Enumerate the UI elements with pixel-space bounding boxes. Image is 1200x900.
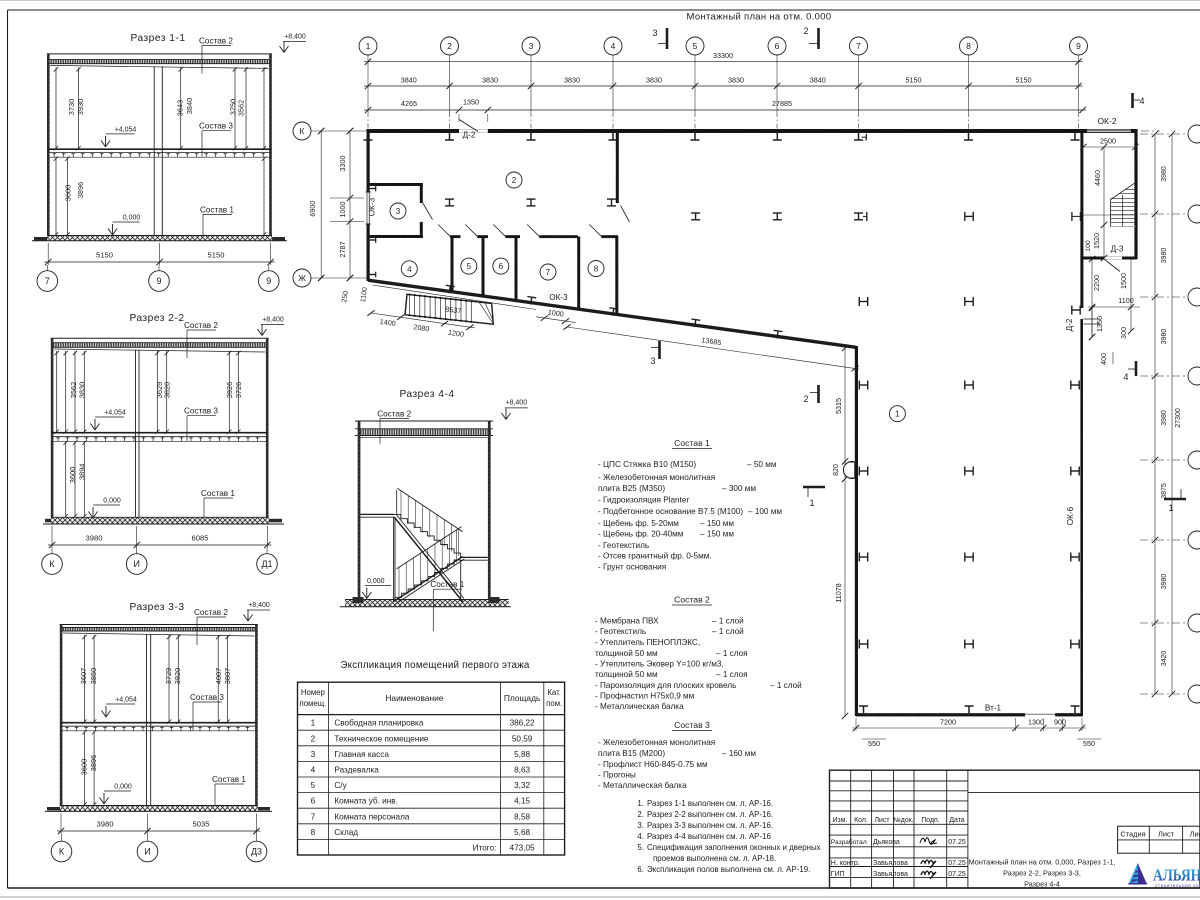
svg-text:Подп.: Подп. <box>921 817 939 824</box>
svg-text:– 300 мм: – 300 мм <box>722 484 756 493</box>
svg-text:Состав 2: Состав 2 <box>194 608 228 617</box>
svg-text:3930: 3930 <box>76 99 85 115</box>
svg-text:5.: 5. <box>637 843 644 852</box>
svg-text:Кат.: Кат. <box>547 688 561 697</box>
svg-text:Итого:: Итого: <box>473 844 497 853</box>
svg-text:3420: 3420 <box>1161 651 1168 667</box>
svg-text:Разрез 2-2, Разрез 3-3,: Разрез 2-2, Разрез 3-3, <box>1003 869 1081 878</box>
svg-text:- Прогоны: - Прогоны <box>598 771 636 780</box>
svg-text:1: 1 <box>311 719 316 728</box>
svg-text:2500: 2500 <box>1100 137 1116 146</box>
svg-text:2: 2 <box>311 734 316 743</box>
svg-text:Лист: Лист <box>1158 830 1175 839</box>
svg-text:5150: 5150 <box>96 251 113 260</box>
svg-text:Д3: Д3 <box>251 847 262 857</box>
svg-text:– 150 мм: – 150 мм <box>700 530 734 539</box>
svg-text:3: 3 <box>396 207 401 216</box>
svg-text:Состав 3: Состав 3 <box>190 693 224 702</box>
svg-text:Комната уб. инв.: Комната уб. инв. <box>334 797 397 806</box>
svg-text:4,15: 4,15 <box>514 797 530 806</box>
svg-text:- Щебень фр. 20-40мм: - Щебень фр. 20-40мм <box>598 530 684 539</box>
svg-text:8: 8 <box>966 41 971 51</box>
svg-text:4: 4 <box>611 41 616 51</box>
svg-text:3980: 3980 <box>1161 248 1168 264</box>
svg-text:+8,400: +8,400 <box>262 317 284 324</box>
svg-text:3562: 3562 <box>69 382 78 398</box>
svg-text:– 1 слой: – 1 слой <box>770 681 802 690</box>
svg-text:5150: 5150 <box>906 76 922 85</box>
svg-text:Главная касса: Главная касса <box>334 750 389 759</box>
svg-text:- Металлическая балка: - Металлическая балка <box>595 702 684 711</box>
svg-text:ОК-6: ОК-6 <box>1066 506 1075 525</box>
svg-text:2: 2 <box>803 394 808 404</box>
svg-text:ГИП: ГИП <box>831 871 845 878</box>
svg-text:- Подбетонное основание В7.5 (: - Подбетонное основание В7.5 (М100) <box>598 507 743 516</box>
svg-text:5150: 5150 <box>1016 76 1032 85</box>
svg-text:3875: 3875 <box>1161 483 1168 499</box>
svg-text:Монтажный план на отм. 0.000: Монтажный план на отм. 0.000 <box>687 12 832 23</box>
svg-text:- Железобетонная монолитная: - Железобетонная монолитная <box>598 738 715 747</box>
svg-text:Разрез 3-3: Разрез 3-3 <box>129 602 184 613</box>
svg-text:473,05: 473,05 <box>510 844 535 853</box>
svg-text:5315: 5315 <box>834 398 843 414</box>
svg-text:3: 3 <box>311 750 316 759</box>
svg-text:+4,054: +4,054 <box>115 697 137 704</box>
svg-text:7200: 7200 <box>940 718 956 727</box>
svg-text:3980: 3980 <box>97 820 114 829</box>
svg-text:- Щебень фр. 5-20мм: - Щебень фр. 5-20мм <box>598 519 679 528</box>
svg-text:3926: 3926 <box>225 382 234 398</box>
svg-text:Экспликация полов выполнена см: Экспликация полов выполнена см. л. АР-19… <box>647 865 810 874</box>
svg-text:пом.: пом. <box>546 699 562 708</box>
svg-text:1: 1 <box>366 41 371 51</box>
svg-text:6: 6 <box>499 262 504 271</box>
svg-text:50,59: 50,59 <box>512 734 533 743</box>
svg-text:Раздевалка: Раздевалка <box>334 766 379 775</box>
svg-text:7: 7 <box>311 812 316 821</box>
svg-text:Склад: Склад <box>334 828 358 837</box>
svg-text:3980: 3980 <box>1161 166 1168 182</box>
svg-text:27885: 27885 <box>772 99 792 108</box>
svg-text:Вт-1: Вт-1 <box>985 704 1002 713</box>
svg-text:Д-3: Д-3 <box>1111 245 1124 254</box>
svg-text:4: 4 <box>1139 96 1144 106</box>
svg-text:3643: 3643 <box>176 100 185 116</box>
svg-text:4460: 4460 <box>1093 170 1102 186</box>
svg-text:Техническое помещение: Техническое помещение <box>334 734 429 743</box>
svg-text:3600: 3600 <box>79 759 88 775</box>
svg-text:8: 8 <box>594 265 599 274</box>
svg-text:3980: 3980 <box>1161 574 1168 590</box>
svg-text:Лист: Лист <box>875 817 891 824</box>
svg-text:+8,400: +8,400 <box>505 400 527 407</box>
svg-text:+4,054: +4,054 <box>115 126 137 133</box>
svg-text:Дьякова: Дьякова <box>873 839 900 846</box>
svg-text:100: 100 <box>1085 240 1092 252</box>
svg-text:3920: 3920 <box>173 668 182 684</box>
svg-text:плита В25 (М350): плита В25 (М350) <box>598 484 665 493</box>
svg-text:5035: 5035 <box>193 820 210 829</box>
svg-text:- Геотекстиль: - Геотекстиль <box>598 541 649 550</box>
svg-text:1100: 1100 <box>1118 296 1133 305</box>
svg-text:2: 2 <box>447 41 452 51</box>
svg-text:- Геотекстиль: - Геотекстиль <box>595 627 646 636</box>
svg-text:7: 7 <box>856 41 861 51</box>
svg-text:4265: 4265 <box>401 99 417 108</box>
svg-text:Состав 3: Состав 3 <box>199 122 233 131</box>
svg-text:2200: 2200 <box>1092 275 1101 291</box>
svg-text:3830: 3830 <box>646 76 662 85</box>
svg-text:И: И <box>133 559 139 569</box>
svg-text:6900: 6900 <box>308 201 317 217</box>
svg-text:27300: 27300 <box>1175 408 1182 428</box>
svg-text:Кол.: Кол. <box>854 817 868 824</box>
svg-text:Спецификация заполнения оконны: Спецификация заполнения оконных и дверны… <box>647 843 821 852</box>
svg-text:проемов выполнена см. л. АР-18: проемов выполнена см. л. АР-18. <box>653 854 776 863</box>
svg-text:9: 9 <box>1076 41 1081 51</box>
svg-text:Д-2: Д-2 <box>1065 318 1074 331</box>
svg-text:- Отсев гранитный фр. 0-5мм.: - Отсев гранитный фр. 0-5мм. <box>598 551 712 560</box>
svg-text:3830: 3830 <box>482 76 498 85</box>
svg-text:3840: 3840 <box>401 76 417 85</box>
svg-text:Н. контр.: Н. контр. <box>831 860 860 867</box>
svg-text:4: 4 <box>407 265 412 274</box>
svg-text:400: 400 <box>1099 353 1108 365</box>
svg-text:6: 6 <box>311 797 316 806</box>
svg-text:3830: 3830 <box>728 76 744 85</box>
svg-text:Разрез 2-2: Разрез 2-2 <box>129 313 184 324</box>
svg-text:1: 1 <box>895 410 900 419</box>
svg-text:толщиной 50 мм: толщиной 50 мм <box>595 670 658 679</box>
svg-text:АЛЬЯНС: АЛЬЯНС <box>1153 866 1200 885</box>
svg-text:07.25: 07.25 <box>948 839 966 846</box>
svg-text:Наименование: Наименование <box>385 693 443 703</box>
svg-text:1520: 1520 <box>1092 233 1101 249</box>
svg-text:Состав 2: Состав 2 <box>184 321 218 330</box>
svg-text:Состав 1: Состав 1 <box>201 489 235 498</box>
svg-text:Ж: Ж <box>298 273 306 283</box>
svg-text:7: 7 <box>546 268 551 277</box>
svg-text:3840: 3840 <box>810 76 826 85</box>
svg-text:Состав 1: Состав 1 <box>674 438 710 448</box>
svg-text:– 1 слоя: – 1 слоя <box>716 649 748 658</box>
svg-text:8: 8 <box>311 828 316 837</box>
svg-text:- Профлист Н60-845-0.75 мм: - Профлист Н60-845-0.75 мм <box>598 760 708 769</box>
svg-text:300: 300 <box>1119 327 1128 339</box>
svg-text:Состав 3: Состав 3 <box>674 720 710 730</box>
svg-text:Разрез 3-3 выполнен см. л. АР-: Разрез 3-3 выполнен см. л. АР-16. <box>647 821 773 830</box>
svg-text:– 1 слой: – 1 слой <box>712 627 744 636</box>
svg-text:– 1 слой: – 1 слой <box>712 616 744 625</box>
svg-text:3980: 3980 <box>1161 329 1168 345</box>
svg-text:3726: 3726 <box>234 382 243 398</box>
svg-text:900: 900 <box>1054 718 1066 727</box>
svg-text:Завьялова: Завьялова <box>873 860 908 867</box>
svg-text:550: 550 <box>868 739 880 748</box>
svg-text:№док.: №док. <box>893 817 913 824</box>
svg-text:помещ.: помещ. <box>299 699 326 708</box>
svg-text:0,000: 0,000 <box>114 784 132 791</box>
svg-text:С/у: С/у <box>334 781 347 790</box>
svg-text:- Грунт основания: - Грунт основания <box>598 563 666 572</box>
svg-text:3: 3 <box>650 356 655 366</box>
svg-text:6085: 6085 <box>192 534 209 543</box>
svg-text:Д1: Д1 <box>261 559 272 569</box>
svg-text:1500: 1500 <box>1119 273 1128 289</box>
svg-text:4: 4 <box>311 766 316 775</box>
svg-text:3980: 3980 <box>1161 410 1168 426</box>
svg-text:Экспликация помещений первого: Экспликация помещений первого этажа <box>340 660 530 671</box>
svg-text:Состав 1: Состав 1 <box>200 205 234 214</box>
svg-text:3980: 3980 <box>86 534 103 543</box>
svg-text:3607: 3607 <box>79 668 88 684</box>
svg-text:Свободная планировка: Свободная планировка <box>334 719 423 728</box>
svg-text:3896: 3896 <box>76 182 85 198</box>
svg-text:– 150 мм: – 150 мм <box>700 519 734 528</box>
svg-text:3600: 3600 <box>63 185 72 201</box>
svg-text:3729: 3729 <box>164 668 173 684</box>
svg-text:+4,054: +4,054 <box>104 410 126 417</box>
svg-text:5: 5 <box>467 262 472 271</box>
svg-text:ОК-3: ОК-3 <box>549 293 568 302</box>
svg-text:+8,400: +8,400 <box>248 602 270 609</box>
svg-text:4007: 4007 <box>214 668 223 684</box>
svg-text:- Утеплитель Эковер Y=100 кг/м: - Утеплитель Эковер Y=100 кг/м3, <box>595 660 724 669</box>
svg-text:3830: 3830 <box>78 382 87 398</box>
svg-text:9: 9 <box>266 276 271 286</box>
svg-text:3894: 3894 <box>77 463 86 479</box>
svg-text:- Железобетонная монолитная: - Железобетонная монолитная <box>598 473 715 482</box>
svg-text:Разрез 4-4: Разрез 4-4 <box>399 389 454 400</box>
svg-text:- Мембрана ПВХ: - Мембрана ПВХ <box>595 616 659 625</box>
svg-text:К: К <box>49 559 55 569</box>
svg-text:3,32: 3,32 <box>514 781 530 790</box>
svg-text:- Профнастил Н75х0,9 мм: - Профнастил Н75х0,9 мм <box>595 692 695 701</box>
svg-text:8,63: 8,63 <box>514 766 530 775</box>
svg-text:1300: 1300 <box>1028 718 1044 727</box>
svg-text:0,000: 0,000 <box>103 498 121 505</box>
svg-text:Стадия: Стадия <box>1120 830 1145 839</box>
svg-text:– 100 мм: – 100 мм <box>748 507 782 516</box>
svg-text:1000: 1000 <box>338 202 347 218</box>
svg-text:Разрез 4-4 выполнен см. л. АР-: Разрез 4-4 выполнен см. л. АР-16 <box>647 832 771 841</box>
svg-text:6.: 6. <box>637 865 644 874</box>
svg-text:3820: 3820 <box>163 382 172 398</box>
svg-text:2.: 2. <box>637 810 644 819</box>
svg-text:2: 2 <box>803 26 808 36</box>
svg-text:5150: 5150 <box>208 251 225 260</box>
svg-text:3840: 3840 <box>185 98 194 114</box>
svg-text:3830: 3830 <box>564 76 580 85</box>
svg-text:9: 9 <box>156 276 161 286</box>
svg-text:Состав 2: Состав 2 <box>199 37 233 46</box>
svg-text:1: 1 <box>1168 503 1173 513</box>
svg-text:5: 5 <box>311 781 316 790</box>
svg-text:Состав 1: Состав 1 <box>430 580 464 589</box>
svg-text:– 50 мм: – 50 мм <box>747 460 777 469</box>
svg-text:0,000: 0,000 <box>367 578 385 585</box>
svg-text:2787: 2787 <box>338 242 347 258</box>
svg-text:820: 820 <box>833 464 840 476</box>
svg-text:4: 4 <box>1123 372 1128 382</box>
svg-text:Площадь: Площадь <box>504 693 541 703</box>
svg-text:3850: 3850 <box>89 668 98 684</box>
svg-text:Разрез 1-1: Разрез 1-1 <box>130 33 185 44</box>
svg-text:К: К <box>300 126 305 136</box>
svg-text:5,88: 5,88 <box>514 750 530 759</box>
svg-text:3: 3 <box>529 41 534 51</box>
svg-text:Состав 2: Состав 2 <box>377 410 411 419</box>
svg-text:8,58: 8,58 <box>514 812 530 821</box>
svg-text:1.: 1. <box>637 799 644 808</box>
svg-text:11078: 11078 <box>834 583 843 602</box>
svg-text:5,68: 5,68 <box>514 828 530 837</box>
svg-text:Монтажный план на отм. 0,000,: Монтажный план на отм. 0,000, Разрез 1-1… <box>969 858 1116 867</box>
svg-text:3.: 3. <box>637 821 644 830</box>
svg-text:07.25: 07.25 <box>948 871 966 878</box>
svg-text:Завьялова: Завьялова <box>873 871 908 878</box>
svg-text:2: 2 <box>512 176 517 185</box>
svg-text:Номер: Номер <box>301 688 326 697</box>
svg-text:3600: 3600 <box>68 467 77 483</box>
svg-text:– 1 слоя: – 1 слоя <box>716 670 748 679</box>
svg-text:5: 5 <box>693 41 698 51</box>
svg-text:ОК-2: ОК-2 <box>1097 116 1116 126</box>
svg-text:1350: 1350 <box>463 98 479 107</box>
svg-text:Состав 3: Состав 3 <box>184 407 218 416</box>
svg-text:Разрез 4-4: Разрез 4-4 <box>1024 879 1060 888</box>
svg-text:Разрез 2-2 выполнен см. л. АР-: Разрез 2-2 выполнен см. л. АР-16. <box>647 810 773 819</box>
svg-text:3300: 3300 <box>338 156 347 172</box>
svg-text:1350: 1350 <box>1095 316 1104 332</box>
svg-text:Комната персонала: Комната персонала <box>334 812 409 821</box>
svg-text:7: 7 <box>45 276 50 286</box>
svg-text:+8,400: +8,400 <box>284 34 306 41</box>
svg-text:Лис: Лис <box>1190 830 1200 839</box>
svg-text:Д-2: Д-2 <box>463 131 476 140</box>
svg-text:Состав 1: Состав 1 <box>212 775 246 784</box>
svg-text:строительная компания: строительная компания <box>1155 883 1200 888</box>
svg-text:- ЦПС Стяжка В10 (М150): - ЦПС Стяжка В10 (М150) <box>598 460 696 469</box>
svg-text:0,000: 0,000 <box>123 215 141 222</box>
svg-text:3562: 3562 <box>237 100 246 116</box>
svg-text:- Утеплитель ПЕНОПЛЭКС,: - Утеплитель ПЕНОПЛЭКС, <box>595 638 700 647</box>
svg-text:3896: 3896 <box>89 755 98 771</box>
svg-text:- Гидроизоляция Planter: - Гидроизоляция Planter <box>598 496 689 505</box>
svg-text:3807: 3807 <box>223 668 232 684</box>
svg-text:1: 1 <box>809 498 814 508</box>
svg-text:плита В15 (М200): плита В15 (М200) <box>598 749 665 758</box>
svg-text:толщиной 50 мм: толщиной 50 мм <box>595 649 658 658</box>
svg-text:550: 550 <box>1083 739 1095 748</box>
svg-text:07.25: 07.25 <box>948 860 966 867</box>
svg-text:386,22: 386,22 <box>510 719 535 728</box>
svg-text:33300: 33300 <box>713 51 733 60</box>
svg-text:Разрез 1-1 выполнен см. л. АР-: Разрез 1-1 выполнен см. л. АР-16. <box>647 799 773 808</box>
svg-text:3730: 3730 <box>67 99 76 115</box>
svg-text:Разработал: Разработал <box>831 838 867 846</box>
svg-text:- Пароизоляция для плоских кро: - Пароизоляция для плоских кровель <box>595 681 736 690</box>
svg-text:Дата: Дата <box>949 817 964 824</box>
svg-text:6: 6 <box>775 41 780 51</box>
svg-text:И: И <box>144 847 150 857</box>
svg-text:4.: 4. <box>637 832 644 841</box>
svg-text:Изм.: Изм. <box>833 817 848 824</box>
svg-text:- Металлическая балка: - Металлическая балка <box>598 781 687 790</box>
svg-text:3: 3 <box>652 28 657 38</box>
svg-text:К: К <box>59 847 65 857</box>
svg-text:Состав 2: Состав 2 <box>674 595 710 605</box>
svg-text:– 160 мм: – 160 мм <box>722 749 756 758</box>
